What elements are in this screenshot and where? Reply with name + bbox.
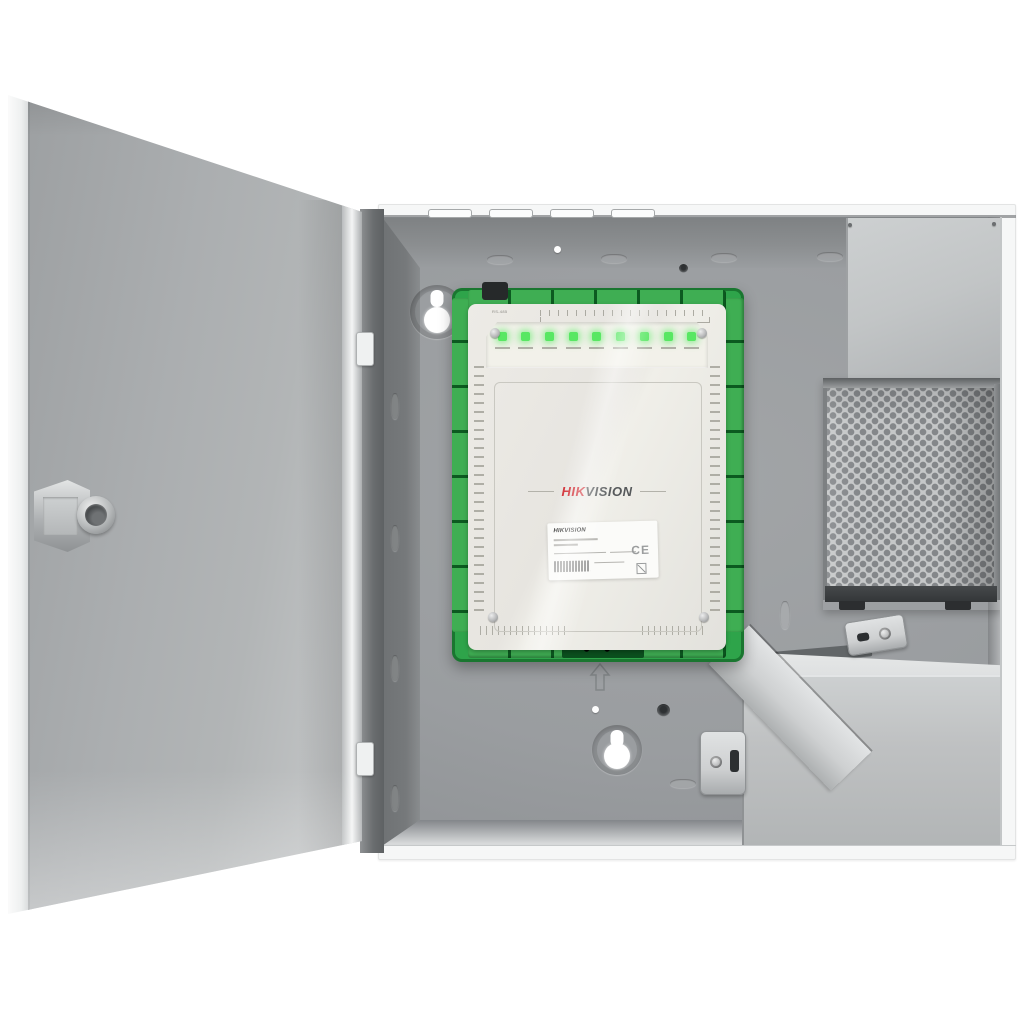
tamper-switch bbox=[482, 282, 508, 300]
product-label-sticker: HIKVISION CE bbox=[547, 521, 658, 581]
led-lamp bbox=[664, 332, 673, 341]
brand-wordmark: HIKVISION bbox=[562, 484, 633, 499]
lock-cylinder bbox=[77, 496, 115, 534]
led-label bbox=[661, 347, 676, 349]
product-photo-access-controller-enclosure: RS-485 HIKVISION bbox=[0, 0, 1024, 1024]
led-row bbox=[486, 322, 708, 368]
brand-rule-right bbox=[640, 491, 666, 492]
lock-core bbox=[85, 504, 107, 526]
cover-screw bbox=[490, 328, 500, 338]
cover-screw bbox=[699, 612, 709, 622]
led-lamp bbox=[640, 332, 649, 341]
status-led bbox=[613, 322, 628, 368]
brand-hik: HIK bbox=[562, 484, 586, 499]
clamp-slot bbox=[730, 750, 739, 772]
knockout-oval bbox=[391, 655, 399, 681]
led-lamp bbox=[687, 332, 696, 341]
sticker-text-line bbox=[594, 561, 624, 563]
sticker-barcode bbox=[554, 560, 590, 572]
psu-base-bar bbox=[825, 586, 997, 602]
clamp-screw bbox=[878, 627, 892, 641]
knockout-oval bbox=[780, 601, 790, 629]
psu-foot bbox=[945, 601, 971, 610]
psu-top-edge bbox=[823, 378, 1001, 388]
led-label bbox=[637, 347, 652, 349]
controller-cover-plate: RS-485 HIKVISION bbox=[468, 304, 726, 650]
cable-knockout-slot bbox=[489, 209, 533, 218]
knockout-oval bbox=[711, 253, 737, 262]
sticker-text-line bbox=[554, 538, 598, 541]
weee-bin-icon bbox=[636, 563, 646, 574]
port-label: RS-485 bbox=[492, 309, 507, 314]
knockout-oval bbox=[601, 254, 627, 263]
led-label bbox=[518, 347, 533, 349]
flange-right-inner-edge bbox=[1000, 217, 1002, 846]
ce-mark: CE bbox=[631, 543, 650, 557]
cover-inner-outline bbox=[494, 382, 702, 632]
status-led bbox=[518, 322, 533, 368]
knockout-oval bbox=[487, 255, 513, 264]
plate-rivet bbox=[848, 223, 852, 227]
brand-rule-left bbox=[528, 491, 554, 492]
screw-hole bbox=[657, 704, 670, 717]
sticker-text-line bbox=[554, 544, 578, 547]
terminal-block-right bbox=[724, 298, 744, 632]
hinge-knuckle-bottom bbox=[356, 742, 374, 776]
cable-knockout-slot bbox=[550, 209, 594, 218]
status-led bbox=[566, 322, 581, 368]
status-led bbox=[637, 322, 652, 368]
led-label bbox=[542, 347, 557, 349]
flange-lip-line bbox=[378, 215, 1016, 218]
cover-screw bbox=[697, 328, 707, 338]
knockout-oval bbox=[391, 393, 399, 419]
led-lamp bbox=[592, 332, 601, 341]
panel-hole bbox=[592, 706, 599, 713]
cable-knockout-slot bbox=[428, 209, 472, 218]
knockout-oval bbox=[817, 252, 843, 261]
keyhole-circle bbox=[604, 743, 630, 769]
sticker-text-line bbox=[554, 552, 606, 554]
door-right-shading bbox=[298, 200, 344, 860]
led-lamp bbox=[545, 332, 554, 341]
psu-foot bbox=[839, 601, 865, 610]
led-label bbox=[589, 347, 604, 349]
lock-face bbox=[43, 497, 78, 535]
led-lamp bbox=[616, 332, 625, 341]
sticker-title: HIKVISION bbox=[553, 527, 586, 534]
battery-clamp-left bbox=[700, 731, 746, 795]
keyhole-circle bbox=[424, 307, 450, 333]
led-lamp bbox=[521, 332, 530, 341]
controller-pcb: RS-485 HIKVISION bbox=[452, 288, 744, 662]
psu-vent-grille bbox=[827, 388, 994, 586]
power-supply-unit bbox=[823, 378, 1001, 610]
psu-left-edge bbox=[823, 388, 827, 600]
led-lamp bbox=[569, 332, 578, 341]
led-label bbox=[566, 347, 581, 349]
status-led bbox=[589, 322, 604, 368]
screw-hole bbox=[679, 264, 688, 273]
knockout-oval bbox=[670, 779, 696, 788]
enclosure-interior: RS-485 HIKVISION bbox=[382, 217, 1002, 846]
door-top-shading bbox=[28, 90, 364, 136]
led-label bbox=[613, 347, 628, 349]
plate-rivet bbox=[992, 222, 996, 226]
door-bottom-highlight bbox=[28, 770, 364, 920]
keyhole-stem bbox=[431, 290, 444, 307]
flange-bottom-inner-edge bbox=[378, 845, 1016, 846]
cable-knockout-slot bbox=[611, 209, 655, 218]
terminal-legend-ticks bbox=[540, 310, 708, 316]
mounting-keyhole-bottom bbox=[592, 725, 642, 775]
hinge-knuckle-top bbox=[356, 332, 374, 366]
up-arrow-icon bbox=[588, 661, 612, 693]
led-window bbox=[486, 322, 708, 368]
door-cam-lock bbox=[34, 474, 118, 558]
knockout-oval bbox=[391, 785, 399, 811]
led-label bbox=[495, 347, 510, 349]
clamp-slot bbox=[857, 632, 870, 642]
status-led bbox=[661, 322, 676, 368]
led-label bbox=[684, 347, 699, 349]
status-led bbox=[684, 322, 699, 368]
cover-screw bbox=[488, 612, 498, 622]
brand-logo: HIKVISION bbox=[468, 484, 726, 499]
knockout-oval bbox=[391, 525, 399, 551]
panel-hole bbox=[554, 246, 561, 253]
status-led bbox=[542, 322, 557, 368]
brand-vision: VISION bbox=[585, 484, 632, 499]
clamp-screw bbox=[710, 756, 722, 768]
psu-mounting-plate bbox=[846, 218, 1002, 382]
